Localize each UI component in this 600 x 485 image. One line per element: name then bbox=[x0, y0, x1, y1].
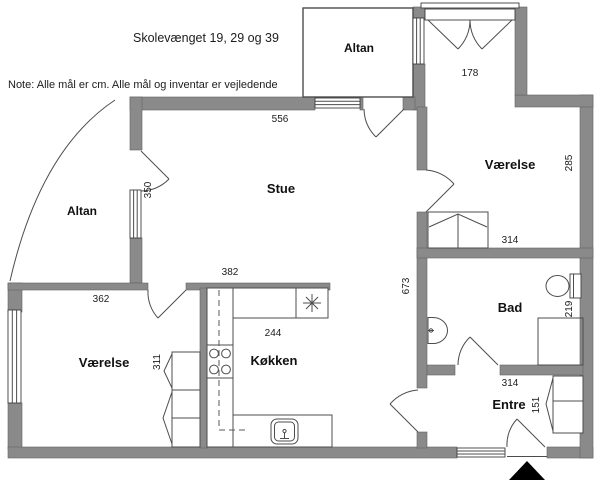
room-label-vaerelse-ne: Værelse bbox=[485, 157, 536, 172]
wall bbox=[515, 7, 527, 95]
wall bbox=[417, 432, 427, 448]
wall bbox=[130, 97, 142, 150]
door bbox=[426, 170, 454, 212]
dim-178: 178 bbox=[462, 68, 479, 79]
room-label-stue: Stue bbox=[267, 181, 295, 196]
shower-icon bbox=[538, 318, 583, 365]
walls bbox=[8, 7, 593, 458]
entrance-arrow bbox=[509, 461, 545, 480]
entrance-door bbox=[507, 419, 547, 457]
labels: Skolevænget 19, 29 og 39 Note: Alle mål … bbox=[8, 31, 575, 413]
dim-314-se: 314 bbox=[502, 378, 519, 389]
note-text: Note: Alle mål er cm. Alle mål og invent… bbox=[8, 79, 278, 91]
wardrobe bbox=[428, 212, 488, 248]
room-label-entre: Entre bbox=[492, 397, 525, 412]
dim-382: 382 bbox=[222, 267, 239, 278]
wall bbox=[500, 365, 583, 375]
window bbox=[130, 190, 141, 238]
balcony-curve bbox=[10, 100, 115, 281]
bathroom-fixtures bbox=[428, 274, 583, 365]
dim-244: 244 bbox=[265, 328, 282, 339]
sink-icon bbox=[271, 419, 298, 444]
wall bbox=[130, 97, 315, 110]
dim-350: 350 bbox=[143, 181, 154, 198]
washbasin-icon bbox=[428, 318, 448, 344]
dim-311: 311 bbox=[152, 354, 163, 370]
room-label-koekken: Køkken bbox=[251, 353, 298, 368]
wall bbox=[417, 107, 427, 170]
wall bbox=[8, 283, 148, 290]
wall bbox=[8, 403, 22, 449]
wall bbox=[360, 97, 363, 110]
terrace-door-frame bbox=[421, 3, 519, 20]
door bbox=[364, 109, 404, 137]
window bbox=[413, 18, 424, 64]
french-door bbox=[428, 20, 512, 49]
window bbox=[315, 98, 360, 108]
door bbox=[458, 337, 498, 365]
wall bbox=[427, 365, 455, 375]
dim-673: 673 bbox=[401, 277, 412, 294]
room-label-vaerelse-sw: Værelse bbox=[79, 355, 130, 370]
wardrobe bbox=[546, 376, 583, 433]
door bbox=[390, 390, 418, 432]
room-label-altan-top: Altan bbox=[344, 41, 374, 55]
wall bbox=[413, 7, 425, 18]
dim-314-ne: 314 bbox=[502, 235, 519, 246]
window bbox=[8, 310, 21, 403]
dim-285: 285 bbox=[564, 154, 575, 171]
window bbox=[457, 448, 505, 457]
page-title: Skolevænget 19, 29 og 39 bbox=[133, 31, 279, 45]
room-label-altan-left: Altan bbox=[67, 204, 97, 218]
dim-151: 151 bbox=[531, 396, 542, 413]
stove-icon bbox=[207, 345, 233, 378]
dim-362: 362 bbox=[93, 294, 110, 305]
room-label-bad: Bad bbox=[498, 300, 523, 315]
floor-plan-page: Skolevænget 19, 29 og 39 Note: Alle mål … bbox=[0, 0, 600, 485]
toilet-icon bbox=[546, 274, 581, 298]
wall bbox=[403, 97, 415, 110]
wall bbox=[515, 95, 593, 107]
wall bbox=[8, 447, 457, 458]
wardrobe bbox=[163, 352, 200, 447]
wall bbox=[417, 212, 427, 388]
dim-219: 219 bbox=[564, 300, 575, 317]
dim-556: 556 bbox=[272, 114, 289, 125]
wall bbox=[200, 288, 207, 448]
wall bbox=[130, 238, 142, 283]
wall bbox=[417, 248, 593, 258]
floor-plan-drawing: Skolevænget 19, 29 og 39 Note: Alle mål … bbox=[0, 0, 600, 485]
door bbox=[148, 290, 186, 318]
